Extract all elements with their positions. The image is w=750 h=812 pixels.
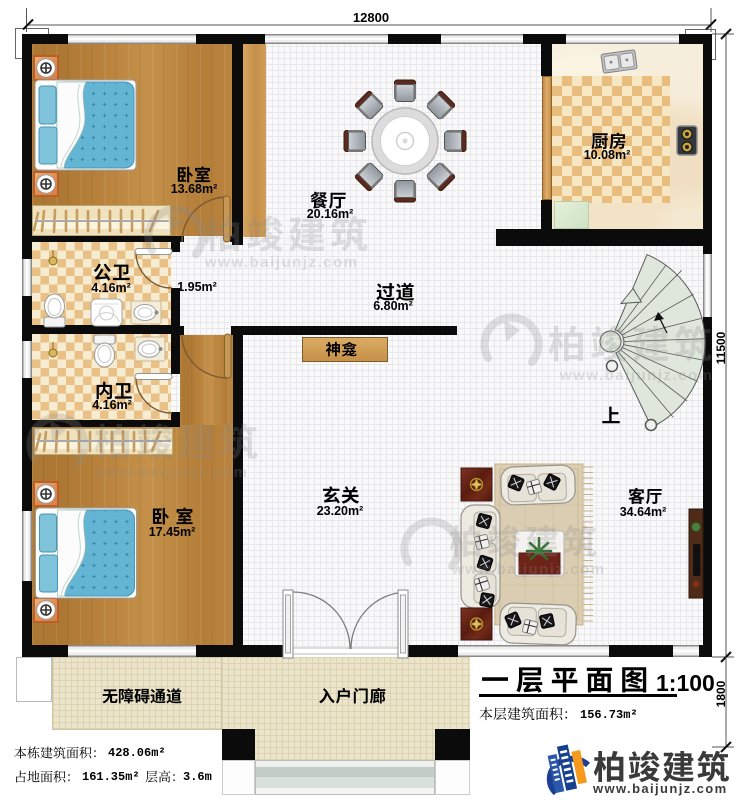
svg-text:www.baijunjz.com: www.baijunjz.com [204, 254, 358, 271]
svg-text:www.baijunjz.com: www.baijunjz.com [559, 367, 713, 384]
svg-text:www.baijunjz.com: www.baijunjz.com [451, 561, 605, 578]
svg-text:www.baijunjz.com: www.baijunjz.com [94, 464, 248, 481]
